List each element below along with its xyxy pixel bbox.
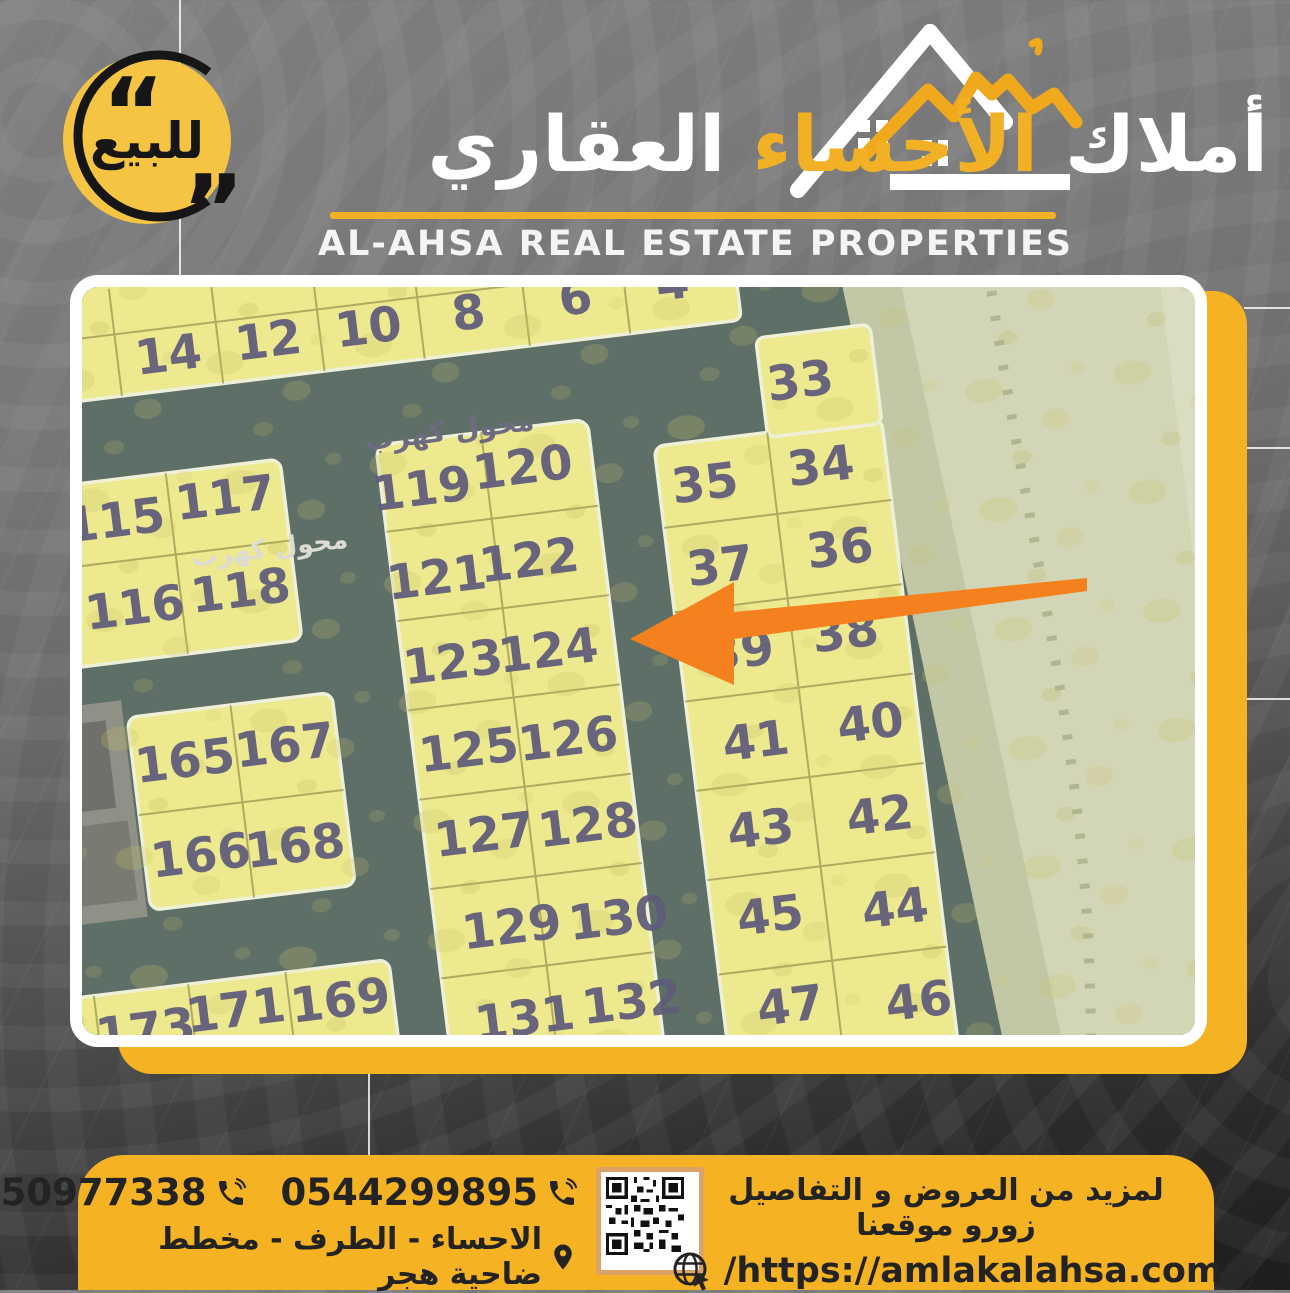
contact-left-block: 0550977338 0544299895 الاحساء [108, 1171, 578, 1292]
plot-number-44: 44 [859, 877, 932, 941]
brand-arabic: أملاك الأحساء العقاري [320, 96, 1268, 196]
phone-primary-number[interactable]: 0550977338 [0, 1171, 207, 1214]
plot-number-40: 40 [834, 691, 907, 755]
decor-horizontal-line-2 [1244, 447, 1290, 449]
plot-number-132: 132 [579, 968, 685, 1035]
promo-text: لمزيد من العروض و التفاصيل زورو موقعنا [706, 1173, 1186, 1243]
close-quote-icon: ” [182, 156, 244, 258]
plot-number-14: 14 [132, 323, 205, 387]
globe-icon [670, 1249, 714, 1293]
brand-ar-left: العقاري [427, 101, 725, 190]
phone-secondary-number[interactable]: 0544299895 [281, 1171, 538, 1214]
decor-horizontal-line-1 [1244, 307, 1290, 309]
website-url[interactable]: /https://amlakalahsa.com [724, 1251, 1223, 1291]
plot-number-45: 45 [734, 884, 807, 948]
phone-row: 0550977338 0544299895 [108, 1171, 578, 1214]
plot-number-33: 33 [764, 349, 837, 413]
brand-underline [330, 212, 1056, 219]
phone-primary[interactable]: 0550977338 [0, 1171, 247, 1214]
brand-english: AL-AHSA REAL ESTATE PROPERTIES [318, 224, 1068, 264]
rotated-map-layer: 1412108641151171161181191201211221231241… [82, 287, 1195, 1035]
for-sale-badge: “ ” للبيع [40, 28, 280, 258]
phone-secondary[interactable]: 0544299895 [281, 1171, 578, 1214]
brand-ar-middle: الأحساء [752, 101, 1038, 190]
plot-number-36: 36 [803, 517, 876, 581]
plot-number-43: 43 [724, 797, 797, 861]
plot-number-46: 46 [882, 969, 955, 1033]
location-pin-icon [548, 1242, 578, 1272]
plot-number-4: 4 [652, 287, 692, 313]
plot-number-35: 35 [668, 452, 741, 516]
phone-icon [546, 1177, 578, 1209]
plot-number-10: 10 [332, 296, 405, 360]
plot-number-6: 6 [555, 287, 595, 328]
qr-pattern [606, 1177, 684, 1255]
plot-number-42: 42 [843, 784, 916, 848]
brand-ar-right: أملاك [1065, 101, 1268, 190]
plot-number-47: 47 [754, 974, 827, 1035]
map-card: 1412108641151171161181191201211221231241… [70, 275, 1207, 1047]
for-sale-label: للبيع [90, 112, 204, 171]
plot-number-41: 41 [719, 709, 792, 773]
plot-number-12: 12 [232, 309, 305, 373]
plot-map-svg: 1412108641151171161181191201211221231241… [82, 287, 1195, 1035]
address-text: الاحساء - الطرف - مخطط ضاحية هجر [108, 1222, 542, 1292]
plot-number-8: 8 [448, 287, 488, 343]
plot-number-34: 34 [784, 434, 857, 498]
decor-horizontal-line-3 [1244, 698, 1290, 700]
plot-number-37: 37 [684, 534, 757, 598]
contact-footer: 0550977338 0544299895 الاحساء [78, 1155, 1214, 1290]
satellite-map: 1412108641151171161181191201211221231241… [82, 287, 1195, 1035]
phone-icon [215, 1177, 247, 1209]
address-row: الاحساء - الطرف - مخطط ضاحية هجر [108, 1222, 578, 1292]
flyer-canvas: { "badge": { "label": "للبيع" }, "logo":… [0, 0, 1290, 1290]
website-block: لمزيد من العروض و التفاصيل زورو موقعنا /… [706, 1173, 1186, 1293]
